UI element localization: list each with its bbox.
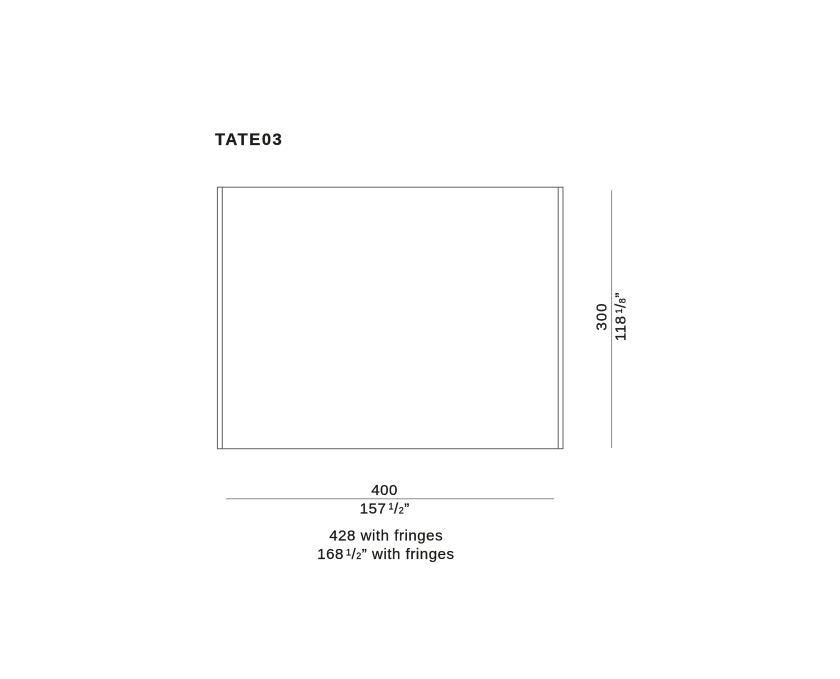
svg-text:400: 400 bbox=[371, 482, 398, 499]
svg-text:TATE03: TATE03 bbox=[215, 131, 283, 149]
svg-text:428 with fringes: 428 with fringes bbox=[329, 528, 443, 545]
svg-text:1181/8”: 1181/8” bbox=[612, 292, 629, 341]
svg-text:1571/2”: 1571/2” bbox=[360, 500, 410, 517]
svg-text:1681/2” with fringes: 1681/2” with fringes bbox=[317, 546, 454, 563]
svg-text:300: 300 bbox=[594, 303, 611, 331]
